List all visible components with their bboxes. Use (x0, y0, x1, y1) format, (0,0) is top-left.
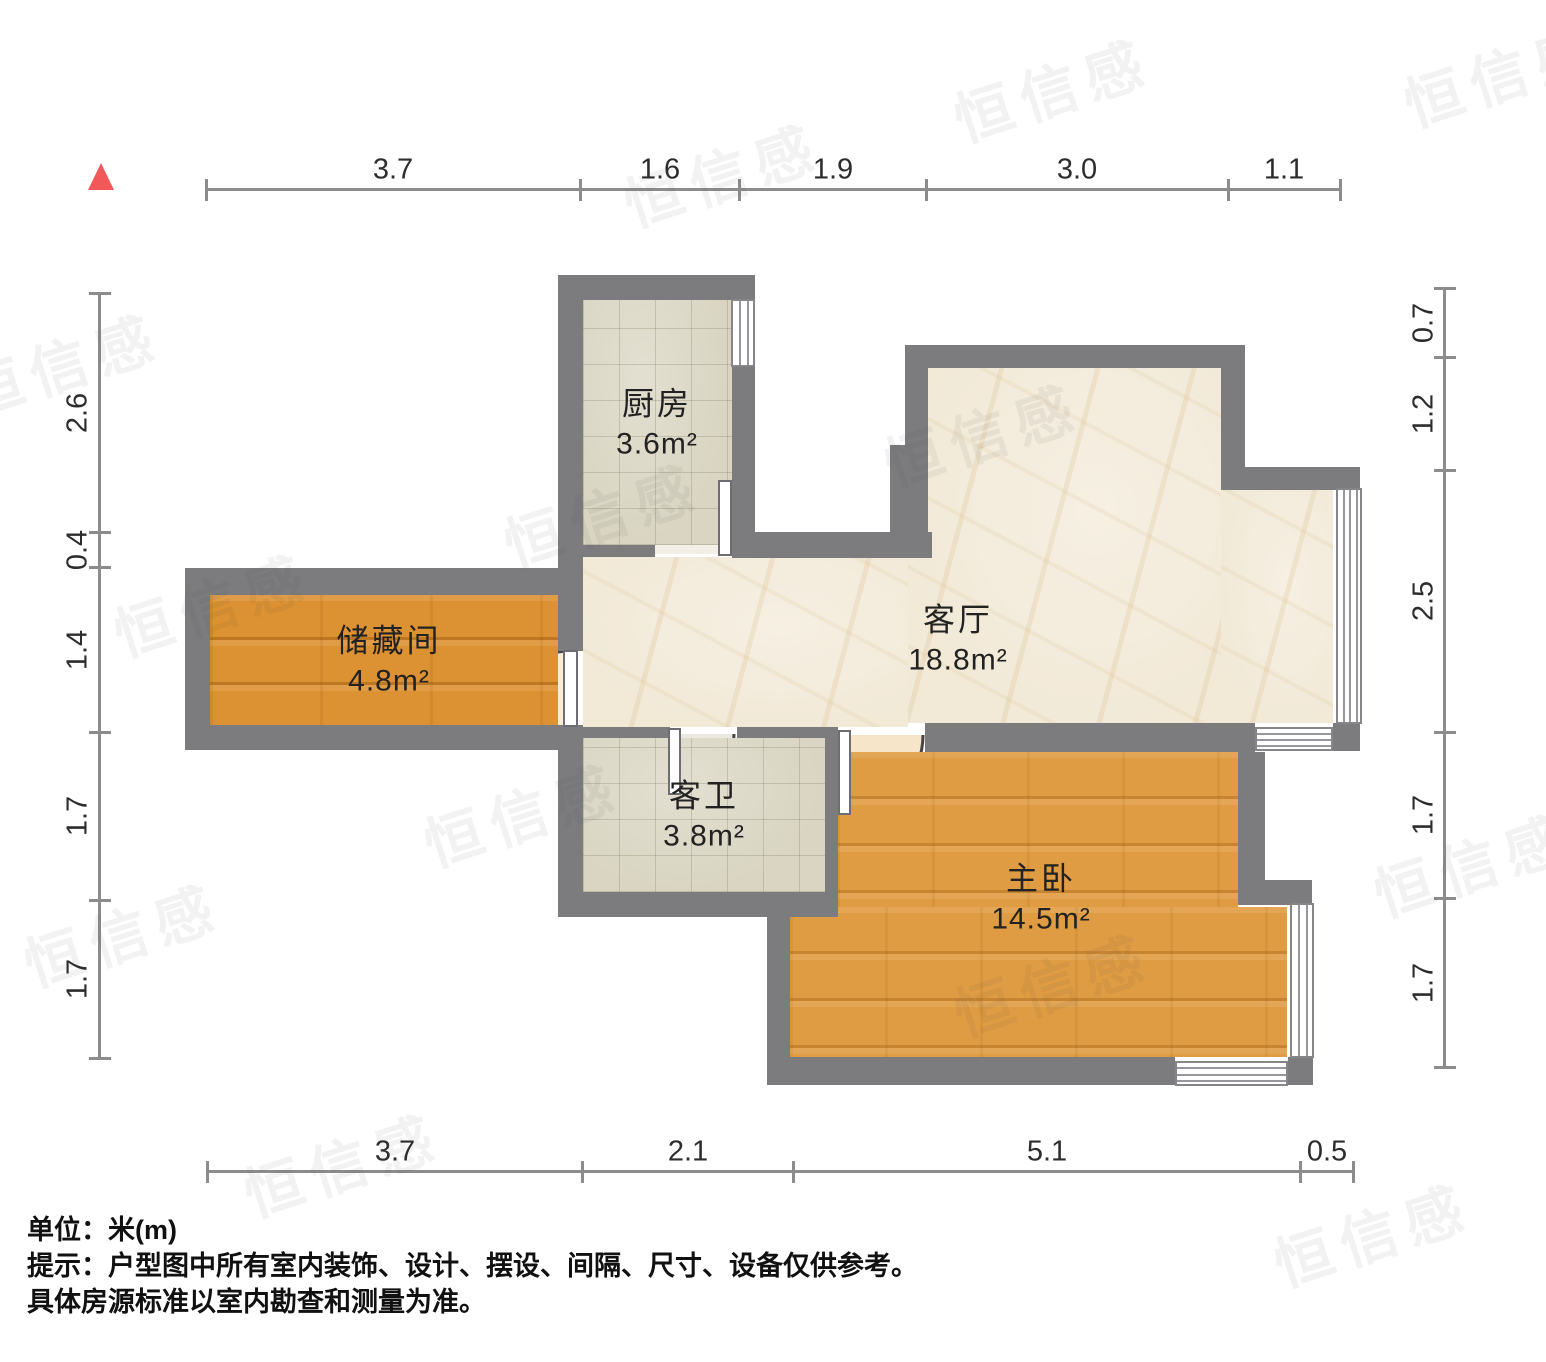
wall (1221, 368, 1245, 490)
dimension-tick (1434, 897, 1456, 900)
dimension-tick (1339, 179, 1342, 201)
dimension-label-right: 1.2 (1408, 394, 1441, 434)
room-label-storage-room: 储藏间4.8m² (336, 616, 441, 699)
window-mullion (1349, 490, 1351, 722)
floorplan-canvas: 单位：米(m) 提示：户型图中所有室内装饰、设计、摆设、间隔、尺寸、设备仅供参考… (0, 0, 1546, 1362)
room-label-guest-bathroom: 客卫3.8m² (663, 771, 745, 854)
wall (925, 723, 1255, 752)
footnote-unit: 单位：米(m) (27, 1212, 918, 1248)
dimension-tick (1434, 1066, 1456, 1069)
watermark: 恒信感 (1262, 1161, 1482, 1304)
kitchen-window (731, 299, 755, 367)
dimension-label-top: 1.6 (640, 154, 680, 187)
wall (558, 726, 583, 917)
dimension-label-bottom: 2.1 (668, 1136, 708, 1169)
window-mullion (1177, 1080, 1286, 1082)
footnote-block: 单位：米(m) 提示：户型图中所有室内装饰、设计、摆设、间隔、尺寸、设备仅供参考… (27, 1212, 918, 1320)
dimension-tick (89, 1057, 111, 1060)
window-mullion (1177, 1067, 1286, 1069)
room-label-master-bedroom: 主卧14.5m² (991, 854, 1090, 937)
dimension-tick (1434, 731, 1456, 734)
dimension-label-right: 1.7 (1408, 963, 1441, 1003)
kitchen-door-leaf (718, 480, 732, 556)
dimension-tick (1434, 469, 1456, 472)
wall (185, 568, 210, 750)
dimension-label-top: 3.0 (1057, 154, 1097, 187)
bedroom-south-window (1175, 1061, 1288, 1086)
dimension-label-top: 1.1 (1264, 154, 1304, 187)
wall (558, 892, 838, 917)
dimension-label-left: 1.7 (62, 796, 95, 836)
dimension-tick (1434, 287, 1456, 290)
storage-door-leaf (563, 650, 578, 727)
window-mullion (1177, 1074, 1286, 1076)
dimension-tick (1352, 1161, 1355, 1183)
wall (185, 725, 583, 750)
wall (1245, 467, 1360, 490)
wall (1288, 1057, 1313, 1085)
dimension-tick (89, 731, 111, 734)
dimension-tick (792, 1161, 795, 1183)
window-mullion (1298, 905, 1300, 1056)
room-name: 客卫 (663, 771, 745, 817)
room-floor-living-room (1221, 490, 1333, 723)
dimension-label-top: 1.9 (813, 154, 853, 187)
room-name: 客厅 (908, 595, 1007, 641)
dimension-tick (205, 179, 208, 201)
room-name: 储藏间 (336, 616, 441, 662)
window-mullion (1343, 490, 1345, 722)
wall (767, 1057, 1175, 1085)
dimension-line-bottom (207, 1170, 1353, 1173)
dimension-tick (1299, 1161, 1302, 1183)
living-east-window (1336, 488, 1362, 724)
dimension-line-right (1443, 288, 1446, 1067)
dimension-line-left (98, 293, 101, 1058)
dimension-tick (581, 1161, 584, 1183)
dimension-label-left: 2.6 (62, 393, 95, 433)
window-mullion (747, 301, 749, 365)
room-name: 主卧 (991, 854, 1090, 900)
wall (1238, 880, 1312, 905)
footnote-disclaimer-2: 具体房源标准以室内勘查和测量为准。 (27, 1284, 918, 1320)
room-floor-living-room (583, 557, 908, 727)
dimension-label-bottom: 3.7 (375, 1136, 415, 1169)
dimension-label-right: 2.5 (1408, 581, 1441, 621)
wall (825, 727, 838, 917)
wall (185, 568, 583, 595)
wall (1238, 752, 1265, 880)
dimension-label-right: 0.7 (1408, 303, 1441, 343)
dimension-label-bottom: 0.5 (1307, 1136, 1347, 1169)
room-label-kitchen: 厨房3.6m² (616, 379, 698, 462)
window-mullion (1257, 745, 1331, 747)
dimension-label-right: 1.7 (1408, 795, 1441, 835)
dimension-tick (1434, 356, 1456, 359)
window-mullion (1257, 739, 1331, 741)
dimension-tick (89, 292, 111, 295)
room-name: 厨房 (616, 379, 698, 425)
window-mullion (1306, 905, 1308, 1056)
dimension-line-top (206, 188, 1340, 191)
dimension-tick (738, 179, 741, 201)
bedroom-door-leaf (838, 730, 851, 815)
room-area: 3.6m² (616, 428, 698, 462)
living-south-window (1255, 727, 1333, 751)
room-area: 18.8m² (908, 644, 1007, 678)
wall (1333, 723, 1360, 751)
dimension-label-left: 1.7 (62, 959, 95, 999)
watermark: 恒信感 (1392, 1, 1546, 144)
window-mullion (739, 301, 741, 365)
dimension-label-left: 0.4 (62, 530, 95, 570)
dimension-label-left: 1.4 (62, 630, 95, 670)
footnote-disclaimer-1: 提示：户型图中所有室内装饰、设计、摆设、间隔、尺寸、设备仅供参考。 (27, 1248, 918, 1284)
dimension-tick (206, 1161, 209, 1183)
window-mullion (1356, 490, 1358, 722)
room-label-living-room: 客厅18.8m² (908, 595, 1007, 678)
dimension-label-top: 3.7 (373, 154, 413, 187)
wall (558, 545, 655, 557)
bedroom-east-window (1290, 903, 1314, 1058)
room-area: 3.8m² (663, 820, 745, 854)
dimension-label-bottom: 5.1 (1027, 1136, 1067, 1169)
room-area: 4.8m² (336, 665, 441, 699)
watermark: 恒信感 (12, 861, 232, 1004)
dimension-tick (1227, 179, 1230, 201)
window-mullion (1257, 733, 1331, 735)
dimension-tick (579, 179, 582, 201)
watermark: 恒信感 (1362, 791, 1546, 934)
dimension-tick (925, 179, 928, 201)
dimension-tick (89, 899, 111, 902)
wall (558, 275, 755, 300)
room-area: 14.5m² (991, 903, 1090, 937)
wall (558, 275, 583, 557)
wall (737, 727, 838, 738)
wall (905, 345, 1245, 368)
north-arrow-icon (88, 163, 114, 190)
wall (890, 445, 928, 558)
watermark: 恒信感 (942, 16, 1162, 159)
